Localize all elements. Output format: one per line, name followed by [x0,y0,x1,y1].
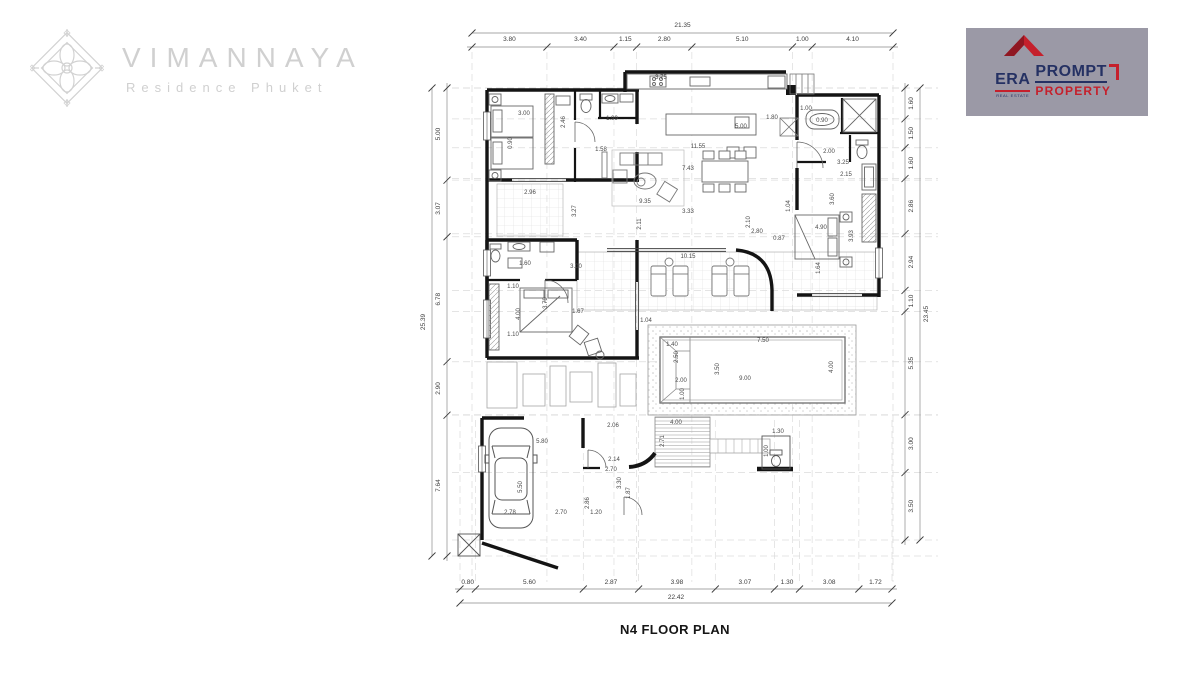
interior-dimension-label: 2.50 [674,351,680,363]
interior-dimension-label: 1.00 [800,106,812,112]
interior-dimension-label: 3.30 [617,477,623,489]
dimension-label: 3.08 [823,579,836,586]
interior-dimension-label: 0.90 [508,137,514,149]
interior-dimension-label: 1.30 [772,429,784,435]
kitchen [627,74,787,158]
dimension-label: 3.80 [503,36,516,43]
interior-dimension-label: 2.14 [608,457,620,463]
dimension-label: 3.50 [908,500,915,513]
interior-dimension-label: 3.79 [543,297,549,309]
interior-dimension-label: 10.15 [680,254,696,260]
interior-dimension-label: 2.96 [524,190,536,196]
dimension-total-label: 22.42 [668,594,685,601]
dining-set [702,151,748,192]
dimension-label: 3.98 [671,579,684,586]
interior-dimension-label: 1.20 [590,510,602,516]
brand-subtitle: Residence Phuket [122,80,364,95]
vimannaya-ornament-icon [30,28,104,108]
interior-dimension-label: 2.15 [840,172,852,178]
dimension-label: 2.86 [908,199,915,212]
bedroom1-furniture [489,94,570,181]
interior-dimension-label: 1.67 [572,309,584,315]
agency-era-text: ERA [995,72,1030,92]
interior-dimension-label: 4.90 [815,225,827,231]
interior-dimension-label: 1.40 [666,342,678,348]
interior-dimension-label: 2.70 [605,467,617,473]
dimension-label: 1.60 [908,156,915,169]
interior-dimension-label: 9.35 [639,199,651,205]
interior-dimension-label: 2.86 [585,497,591,509]
interior-dimension-label: 7.43 [682,166,694,172]
dimension-label: 1.10 [908,294,915,307]
interior-dimension-label: 1.58 [595,147,607,153]
interior-dimension-label: 11.55 [691,144,706,150]
curved-wall [629,453,655,467]
agency-prompt-text: PROMPT [1035,64,1106,83]
interior-dimension-label: 0.87 [773,236,785,242]
dimension-label: 0.80 [461,579,474,586]
dimension-total-label: 23.45 [923,305,930,322]
interior-dimension-label: 1.80 [766,115,778,121]
dimension-label: 4.10 [846,36,859,43]
interior-dimension-label: 5.00 [735,124,747,130]
interior-dimension-label: 3.50 [715,363,721,375]
interior-dimension-label: 2.80 [751,229,763,235]
interior-dimension-label: 3.75 [655,75,667,81]
brand-lockup: VIMANNAYA Residence Phuket [30,28,364,108]
dimension-label: 3.40 [574,36,587,43]
agency-lockup: ERA REAL ESTATE PROMPT PROPERTY [995,46,1119,98]
swimming-pool [660,337,845,403]
dim-chain-left: 5.003.076.782.907.6425.39 [420,83,451,561]
plan-title: N4 FLOOR PLAN [455,622,895,637]
dimension-label: 5.00 [435,127,442,140]
dimension-label: 2.87 [605,579,618,586]
interior-dimension-label: 4.00 [829,361,835,373]
interior-dimension-label: 3.60 [830,193,836,205]
dimension-label: 5.35 [908,356,915,369]
dim-chain-top: 3.803.401.152.805.101.004.1021.35 [467,22,898,51]
era-house-icon [1001,30,1047,58]
interior-dimension-label: 1.00 [764,445,770,457]
interior-dimension-label: 2.00 [823,149,835,155]
brand-name: VIMANNAYA [122,42,364,74]
interior-dimension-label: 3.33 [682,209,694,215]
dimension-label: 7.64 [435,479,442,492]
interior-dimension-label: 3.00 [518,111,530,117]
dimension-label: 5.60 [523,579,536,586]
dimension-label: 1.00 [796,36,809,43]
interior-dimension-label: 3.93 [849,230,855,242]
interior-dimension-label: 2.46 [561,116,567,128]
dimension-label: 2.90 [435,382,442,395]
interior-dimension-label: 2.11 [637,218,643,230]
dimension-label: 3.00 [908,437,915,450]
interior-dimension-label: 5.50 [518,481,524,493]
interior-dimension-label: 2.00 [675,378,687,384]
dim-chain-bottom: 0.805.602.873.983.071.303.081.7222.42 [455,579,897,607]
dimension-label: 2.94 [908,255,915,268]
walls-exterior [482,72,879,568]
interior-dimension-label: 2.06 [607,423,619,429]
interior-dimension-label: 1.99 [606,116,618,122]
dimension-total-label: 25.39 [420,313,427,330]
interior-dimension-label: 1.04 [640,318,652,324]
dimension-label: 5.10 [736,36,749,43]
interior-dimension-label: 1.04 [786,200,792,212]
entry-walkway [629,417,770,467]
dimension-label: 1.60 [908,97,915,110]
agency-logo-panel: ERA REAL ESTATE PROMPT PROPERTY [966,28,1148,116]
floor-plan-page: VIMANNAYA Residence Phuket ERA REAL ESTA… [0,0,1200,675]
interior-dimension-label: 3.25 [837,160,849,166]
interior-dimension-label: 2.10 [746,216,752,228]
agency-bracket-icon [1109,64,1119,80]
dimension-label: 1.15 [619,36,632,43]
interior-dimension-label: 1.10 [507,332,519,338]
bathroom1-fixtures [580,94,633,113]
interior-dimension-label: 2.70 [555,510,567,516]
interior-dimension-label: 5.80 [536,439,548,445]
interior-dimension-label: 1.60 [519,261,531,267]
corner-marker [458,534,480,556]
dimension-label: 1.50 [908,127,915,140]
dimension-label: 3.07 [435,202,442,215]
dim-chain-right: 1.601.501.602.862.941.105.353.003.5023.4… [902,83,931,545]
interior-dimension-label: 4.00 [670,420,682,426]
dimension-label: 6.78 [435,293,442,306]
dimension-label: 1.72 [869,579,882,586]
interior-dimension-label: 3.27 [572,205,578,217]
agency-property-text: PROPERTY [1035,84,1118,98]
agency-realestate-text: REAL ESTATE [996,93,1029,98]
interior-dimension-label: 7.50 [757,338,769,344]
interior-dimension-label: 4.00 [516,308,522,320]
interior-dimension-label: 2.71 [660,435,666,447]
dimension-label: 1.30 [781,579,794,586]
interior-dimension-label: 1.87 [626,487,632,499]
dimension-label: 3.07 [739,579,752,586]
interior-dimension-label: 1.64 [816,262,822,274]
interior-dimension-label: 0.90 [816,118,828,124]
interior-dimension-label: 9.00 [739,376,751,382]
interior-dimension-label: 3.00 [570,264,582,270]
interior-dimension-label: 2.78 [504,510,516,516]
interior-dimension-label: 1.10 [507,284,519,290]
dimension-label: 2.80 [658,36,671,43]
interior-dimension-label: 1.00 [680,388,686,400]
dimension-total-label: 21.35 [674,22,691,29]
